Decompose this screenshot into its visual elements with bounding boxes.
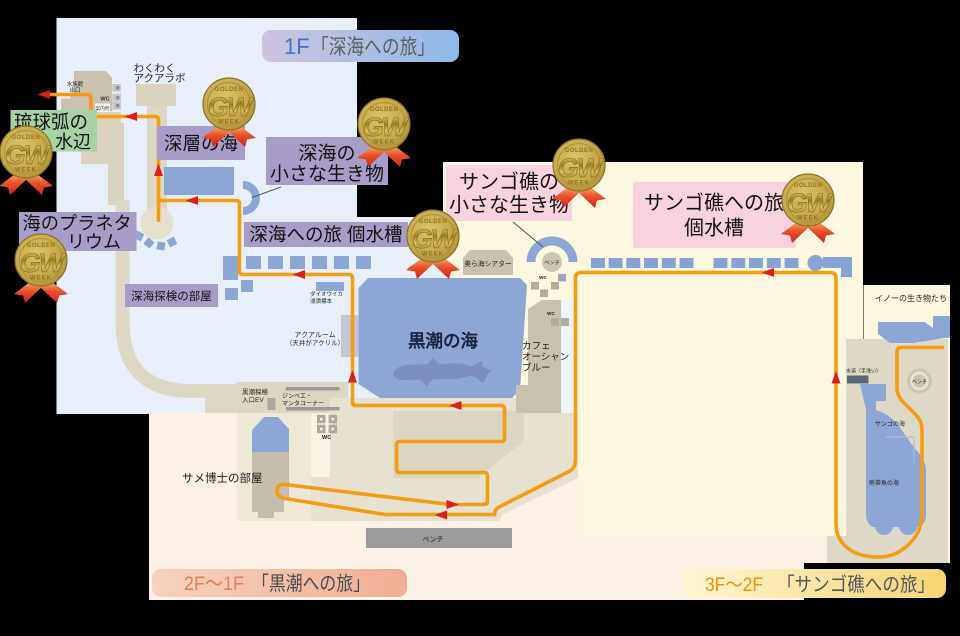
- svg-text:3F～2F: 3F～2F: [705, 575, 763, 596]
- svg-text:黒潮の海: 黒潮の海: [408, 331, 478, 351]
- svg-text:1F: 1F: [284, 34, 310, 59]
- svg-text:リウム: リウム: [67, 232, 121, 252]
- svg-text:「サンゴ礁への旅」: 「サンゴ礁への旅」: [777, 574, 935, 596]
- svg-text:黒潮探検: 黒潮探検: [242, 387, 269, 396]
- svg-text:「深海への旅」: 「深海への旅」: [311, 36, 435, 59]
- svg-text:2F～1F: 2F～1F: [184, 573, 244, 595]
- svg-text:イノーの生き物たち: イノーの生き物たち: [875, 293, 947, 303]
- svg-text:個水槽: 個水槽: [684, 217, 744, 240]
- svg-text:ジンベエ・: ジンベエ・: [282, 393, 312, 400]
- svg-text:サンゴの海: サンゴの海: [875, 420, 905, 428]
- svg-text:マンタコーナー: マンタコーナー: [282, 400, 324, 408]
- svg-text:深層の海: 深層の海: [164, 133, 238, 154]
- svg-text:小さな生き物: 小さな生き物: [449, 194, 569, 217]
- svg-text:美ら海シアター: 美ら海シアター: [464, 259, 512, 268]
- svg-text:ダイオウイカ: ダイオウイカ: [310, 290, 343, 298]
- svg-text:ブルー: ブルー: [522, 362, 551, 374]
- svg-text:サンゴ礁への旅: サンゴ礁への旅: [644, 192, 784, 215]
- svg-text:WC: WC: [322, 435, 331, 441]
- svg-text:海のプラネタ: 海のプラネタ: [23, 214, 132, 234]
- svg-text:熱帯魚の海: 熱帯魚の海: [869, 479, 899, 487]
- svg-text:（天井がアクリル）: （天井がアクリル）: [286, 338, 344, 347]
- svg-text:水族館: 水族館: [67, 80, 84, 88]
- svg-text:水道（手洗い）: 水道（手洗い）: [846, 368, 881, 375]
- svg-text:小さな生き物: 小さな生き物: [270, 163, 384, 185]
- svg-text:アクアルーム: アクアルーム: [294, 331, 335, 339]
- svg-text:WC: WC: [100, 97, 109, 103]
- svg-text:深海探検の部屋: 深海探検の部屋: [131, 289, 212, 303]
- svg-text:ベンチ: ベンチ: [912, 378, 928, 385]
- svg-text:深海の: 深海の: [298, 143, 355, 165]
- svg-text:入口EV: 入口EV: [242, 396, 264, 404]
- svg-text:水辺: 水辺: [55, 132, 91, 152]
- svg-text:WC: WC: [547, 311, 556, 317]
- svg-text:深海への旅 個水槽: 深海への旅 個水槽: [250, 224, 403, 245]
- svg-text:サンゴ礁の: サンゴ礁の: [459, 171, 559, 194]
- svg-text:カフェ: カフェ: [522, 341, 551, 352]
- svg-text:ベンチ: ベンチ: [544, 260, 560, 267]
- svg-text:サメ博士の部屋: サメ博士の部屋: [182, 471, 263, 485]
- svg-text:アクアラボ: アクアラボ: [134, 73, 186, 85]
- svg-text:オーシャン: オーシャン: [522, 352, 569, 363]
- svg-text:浸漬標本: 浸漬標本: [310, 297, 333, 305]
- svg-text:ベンチ: ベンチ: [423, 536, 444, 544]
- svg-text:「黒潮への旅」: 「黒潮への旅」: [252, 573, 370, 595]
- svg-text:案内所: 案内所: [95, 105, 110, 112]
- svg-text:WC: WC: [539, 275, 548, 281]
